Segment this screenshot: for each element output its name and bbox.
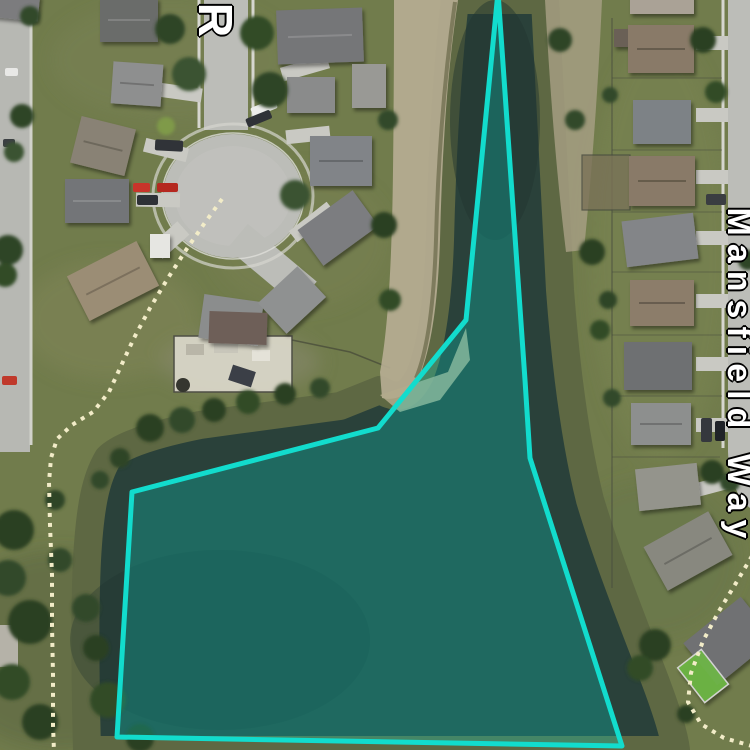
truck <box>157 183 178 192</box>
car <box>5 68 18 76</box>
car <box>2 376 17 385</box>
house <box>630 280 694 326</box>
house <box>629 156 695 206</box>
car <box>701 418 712 442</box>
parked-rv <box>150 234 170 258</box>
house <box>287 77 335 113</box>
house <box>631 403 691 445</box>
house <box>65 179 129 223</box>
house <box>111 61 164 106</box>
truck <box>133 183 150 192</box>
house <box>310 136 372 186</box>
car <box>155 139 184 151</box>
car <box>715 421 725 441</box>
house <box>635 463 701 511</box>
house <box>633 100 691 144</box>
map-viewport[interactable]: R Mansfield Way <box>0 0 750 750</box>
car <box>706 194 726 205</box>
house <box>208 311 267 345</box>
satellite-imagery <box>0 0 750 750</box>
house <box>624 342 692 390</box>
house <box>630 0 694 14</box>
house <box>628 25 694 73</box>
house <box>100 0 158 42</box>
car <box>137 195 158 205</box>
house <box>276 8 364 65</box>
house <box>621 213 698 267</box>
house <box>352 64 386 108</box>
